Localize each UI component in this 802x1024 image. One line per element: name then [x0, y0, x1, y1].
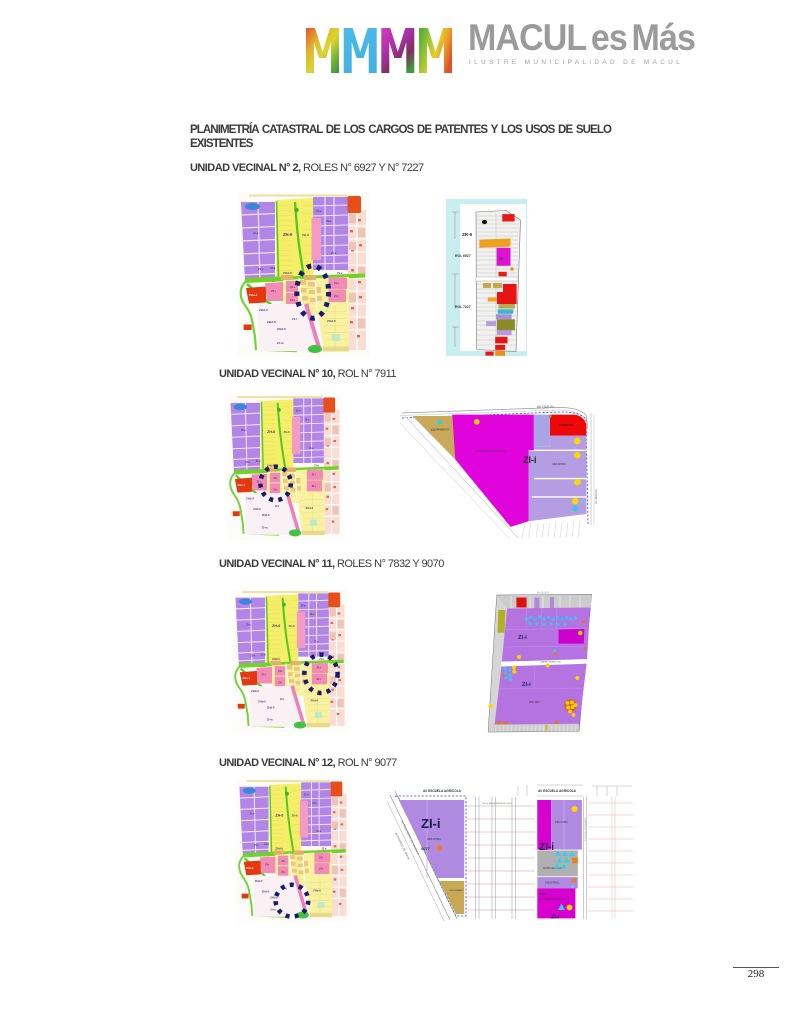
svg-text:ZI-i: ZI-i	[551, 915, 560, 921]
svg-text:AV QUILIN: AV QUILIN	[537, 591, 549, 594]
svg-text:AV QUILIN: AV QUILIN	[537, 405, 554, 409]
svg-text:INDUSTRIAL: INDUSTRIAL	[545, 882, 560, 885]
svg-text:ROL 9070: ROL 9070	[529, 701, 540, 704]
svg-text:INDUSTRIA: INDUSTRIA	[427, 837, 441, 841]
svg-text:9077: 9077	[421, 846, 431, 851]
svg-text:AV ESCUELA AGRICOLA: AV ESCUELA AGRICOLA	[423, 789, 462, 793]
svg-text:INDUSTRIA: INDUSTRIA	[552, 462, 566, 466]
svg-text:ACTIVIDAD PRODUCTIVA: ACTIVIDAD PRODUCTIVA	[539, 898, 566, 901]
svg-text:ZI-i: ZI-i	[518, 635, 527, 641]
svg-text:CAMINO AGRICOLA: CAMINO AGRICOLA	[540, 661, 561, 664]
svg-text:ROL 6927: ROL 6927	[455, 254, 471, 258]
svg-text:COMERCIO: COMERCIO	[559, 423, 573, 427]
svg-text:EQUIPAMIENTO: EQUIPAMIENTO	[431, 429, 449, 432]
svg-text:AV MACUL: AV MACUL	[594, 489, 598, 504]
svg-text:ACTIVIDAD PRODUCTIVA: ACTIVIDAD PRODUCTIVA	[474, 449, 506, 453]
svg-text:INDUSTRIA: INDUSTRIA	[555, 821, 568, 824]
svg-text:ZR-6: ZR-6	[462, 232, 473, 237]
svg-text:SITIO ERIAZO: SITIO ERIAZO	[449, 889, 464, 892]
svg-text:ZI-i: ZI-i	[421, 816, 441, 831]
svg-text:ZI-i: ZI-i	[522, 682, 531, 688]
svg-text:ZI-i: ZI-i	[523, 455, 537, 465]
svg-text:EXEQUIEL FERNANDEZ: EXEQUIEL FERNANDEZ	[584, 817, 587, 841]
svg-text:ROL 7227: ROL 7227	[455, 305, 471, 309]
svg-text:ZI: ZI	[499, 256, 503, 261]
svg-text:CALLE SANTA ELENA DE CHILE: CALLE SANTA ELENA DE CHILE	[482, 802, 513, 805]
svg-text:9077: 9077	[540, 892, 547, 896]
svg-text:AV ESCUELA AGRICOLA: AV ESCUELA AGRICOLA	[538, 789, 577, 793]
